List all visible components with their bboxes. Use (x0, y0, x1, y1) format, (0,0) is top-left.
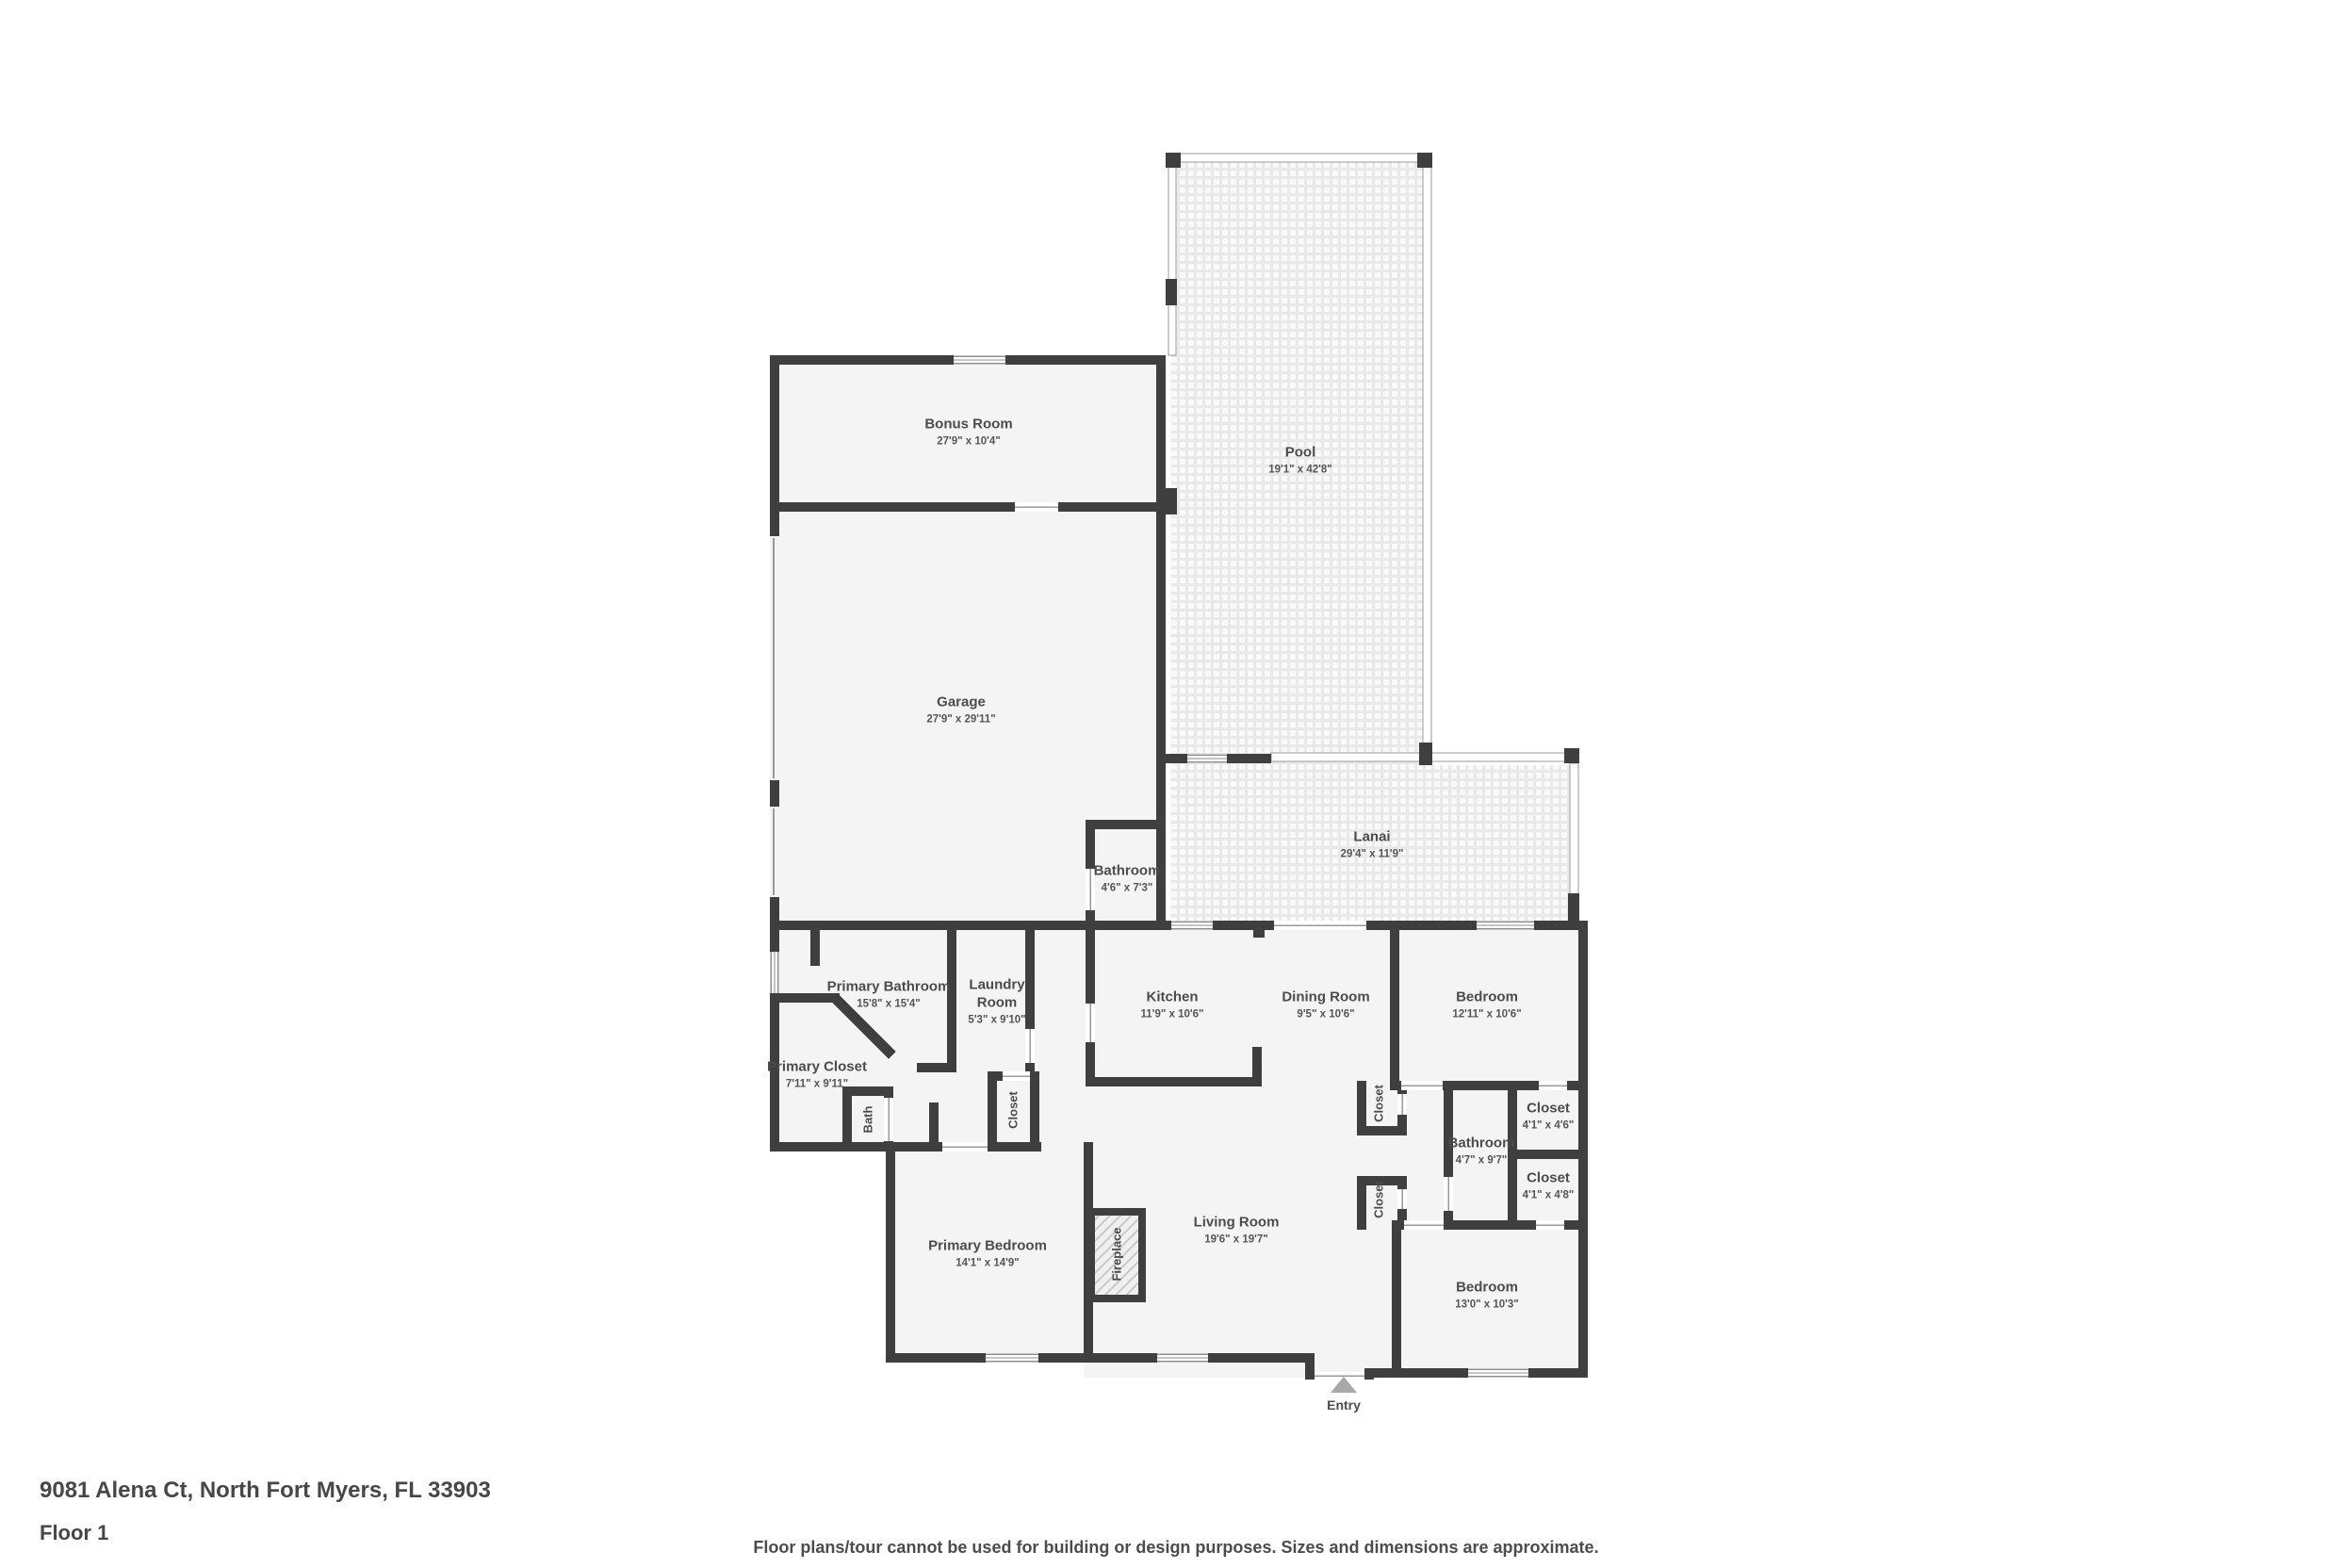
floor-plan-drawing (0, 0, 2352, 1568)
entry-arrow-icon (1331, 1377, 1357, 1393)
pool-surface (1171, 156, 1429, 765)
room-label-fireplace: Fireplace (1110, 1227, 1124, 1281)
room-label-living-closet: Closet (1372, 1181, 1386, 1218)
entry-label: Entry (1327, 1397, 1361, 1413)
floor-label: Floor 1 (40, 1521, 108, 1545)
room-label-dining-closet: Closet (1372, 1085, 1386, 1122)
lanai-surface (1171, 765, 1576, 925)
room-label-bath: Bath (861, 1106, 875, 1134)
room-label-hall-closet: Closet (1006, 1091, 1021, 1129)
floor-plan-page: Bonus Room 27'9" x 10'4" Pool 19'1" x 42… (0, 0, 2352, 1568)
property-address: 9081 Alena Ct, North Fort Myers, FL 3390… (40, 1478, 491, 1504)
disclaimer-text: Floor plans/tour cannot be used for buil… (753, 1538, 1598, 1558)
